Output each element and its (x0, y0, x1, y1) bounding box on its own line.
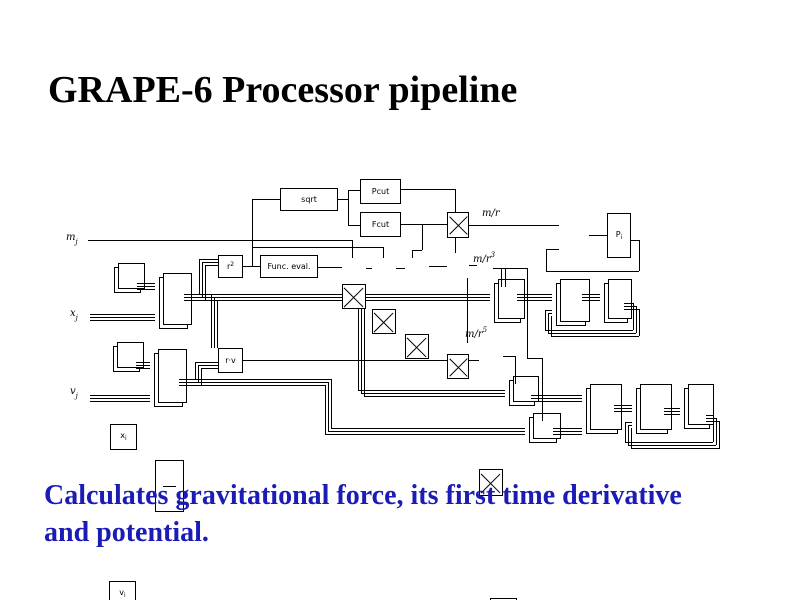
wire (325, 385, 326, 434)
wire-label-m-over-r: m/r (482, 209, 500, 219)
wire (501, 268, 502, 287)
wire (545, 310, 546, 330)
wire (545, 330, 633, 331)
wire (211, 294, 212, 348)
wire (625, 422, 626, 442)
wire (493, 268, 527, 269)
wire (429, 266, 447, 267)
wire (631, 428, 632, 448)
wire (582, 300, 600, 301)
wire (628, 425, 629, 445)
wire (624, 306, 636, 307)
caption-line-2: and potential. (44, 514, 682, 551)
wire (361, 297, 362, 393)
stack-ghost (158, 349, 187, 403)
pi-register-box: Pi (607, 213, 631, 258)
wire (548, 333, 636, 334)
func-eval-box: Func. eval. (260, 255, 318, 278)
wire (628, 445, 716, 446)
wire (517, 297, 552, 298)
wire (713, 415, 714, 442)
wire (202, 262, 203, 297)
wire (252, 199, 253, 266)
wire (364, 300, 365, 396)
wire (716, 418, 717, 445)
wire (348, 190, 360, 191)
wire (90, 320, 155, 321)
wire (553, 428, 582, 429)
wire (205, 265, 206, 300)
wire (624, 303, 633, 304)
sqrt-box: sqrt (280, 188, 338, 211)
wire-label-xj: xj (70, 309, 78, 322)
wire (664, 414, 680, 415)
wire (551, 336, 639, 337)
wire (422, 225, 423, 250)
wire (136, 368, 150, 369)
wire (503, 356, 515, 357)
wire (551, 316, 552, 336)
slide: GRAPE-6 Processor pipeline mj xj vj m/r … (0, 0, 800, 600)
stack-ghost (498, 279, 525, 319)
wire (639, 309, 640, 336)
stack-ghost (163, 273, 192, 325)
wire (137, 289, 155, 290)
wire (553, 434, 582, 435)
wire (531, 398, 582, 399)
wire (88, 240, 352, 241)
wire (361, 393, 505, 394)
wire (542, 358, 543, 421)
wire (396, 268, 405, 269)
wire (545, 310, 552, 311)
caption: Calculates gravitational force, its firs… (44, 477, 682, 551)
multiply-box-potential (447, 212, 469, 238)
stack-ghost (533, 413, 561, 439)
wire (625, 442, 713, 443)
wire (358, 390, 505, 391)
wire (252, 247, 383, 248)
wire (639, 240, 640, 271)
wire (199, 259, 200, 294)
wire (90, 314, 155, 315)
wire (195, 362, 196, 379)
wire (400, 224, 447, 225)
pcut-box: Pcut (360, 179, 401, 204)
wire (90, 317, 155, 318)
wire (546, 249, 559, 250)
wire (199, 259, 218, 260)
wire (706, 415, 713, 416)
wire (366, 268, 372, 269)
wire (184, 297, 490, 298)
wire (517, 294, 552, 295)
wire (548, 313, 549, 333)
wire (517, 300, 552, 301)
wire (531, 401, 582, 402)
wire (331, 428, 525, 429)
wire-label-m-over-r3: m/r3 (473, 252, 495, 265)
wire (201, 368, 202, 385)
wire (348, 190, 349, 226)
xi-register-box: xi (110, 424, 137, 450)
wire (184, 300, 490, 301)
wire (531, 395, 582, 396)
wire (400, 189, 455, 190)
wire (706, 418, 716, 419)
wire (217, 300, 218, 348)
wire (137, 286, 155, 287)
wire (179, 385, 325, 386)
wire (198, 365, 218, 366)
multiply-box-3 (405, 334, 429, 359)
wire (328, 431, 525, 432)
wire (527, 358, 543, 359)
wire (331, 379, 332, 428)
wire (631, 240, 639, 241)
wire (546, 271, 639, 272)
wire (242, 266, 260, 267)
wire (195, 362, 218, 363)
wire (328, 382, 329, 431)
wire (198, 365, 199, 382)
wire (633, 303, 634, 330)
wire (582, 297, 600, 298)
wire (614, 405, 632, 406)
wire (136, 365, 150, 366)
vi-register-box: vi (109, 581, 136, 600)
wire (625, 422, 632, 423)
wire (90, 398, 150, 399)
wire (664, 408, 680, 409)
wire (90, 395, 150, 396)
multiply-box-2 (372, 309, 396, 334)
wire (553, 431, 582, 432)
wire (527, 268, 528, 358)
wire (352, 240, 353, 258)
wire (90, 401, 150, 402)
wire-label-vj: vj (70, 387, 78, 400)
wire (205, 265, 218, 266)
wire (546, 249, 547, 271)
wire (137, 283, 155, 284)
wire (505, 268, 506, 287)
wire-label-mj: mj (66, 233, 78, 246)
wire (636, 306, 637, 333)
stack-ghost (590, 384, 622, 430)
wire (201, 368, 218, 369)
wire (202, 262, 218, 263)
wire (325, 434, 525, 435)
wire-label-m-over-r5: m/r5 (465, 327, 487, 340)
wire (184, 294, 490, 295)
wire (136, 362, 150, 363)
wire (469, 225, 559, 226)
wire (412, 250, 422, 251)
wire (664, 411, 680, 412)
wire (252, 199, 280, 200)
wire (455, 238, 456, 253)
r-dot-v-box: r·v (218, 348, 243, 373)
wire (364, 396, 505, 397)
multiply-box-1 (342, 284, 366, 309)
multiply-box-force-factor (447, 354, 469, 379)
fcut-box: Fcut (360, 212, 401, 237)
wire (515, 356, 516, 384)
stack-ghost (640, 384, 672, 430)
caption-line-1: Calculates gravitational force, its firs… (44, 477, 682, 514)
wire (631, 448, 720, 449)
wire (383, 247, 384, 258)
wire (469, 265, 477, 266)
wire (337, 199, 348, 200)
wire (582, 294, 600, 295)
stack-ghost (608, 279, 632, 319)
r-squared-box: r2 (218, 255, 243, 278)
wire (214, 297, 215, 348)
wire (614, 408, 632, 409)
wire (589, 235, 607, 236)
wire (348, 225, 360, 226)
wire (455, 189, 456, 212)
wire (412, 250, 413, 258)
wire (719, 421, 720, 448)
wire (318, 267, 342, 268)
wire (614, 411, 632, 412)
